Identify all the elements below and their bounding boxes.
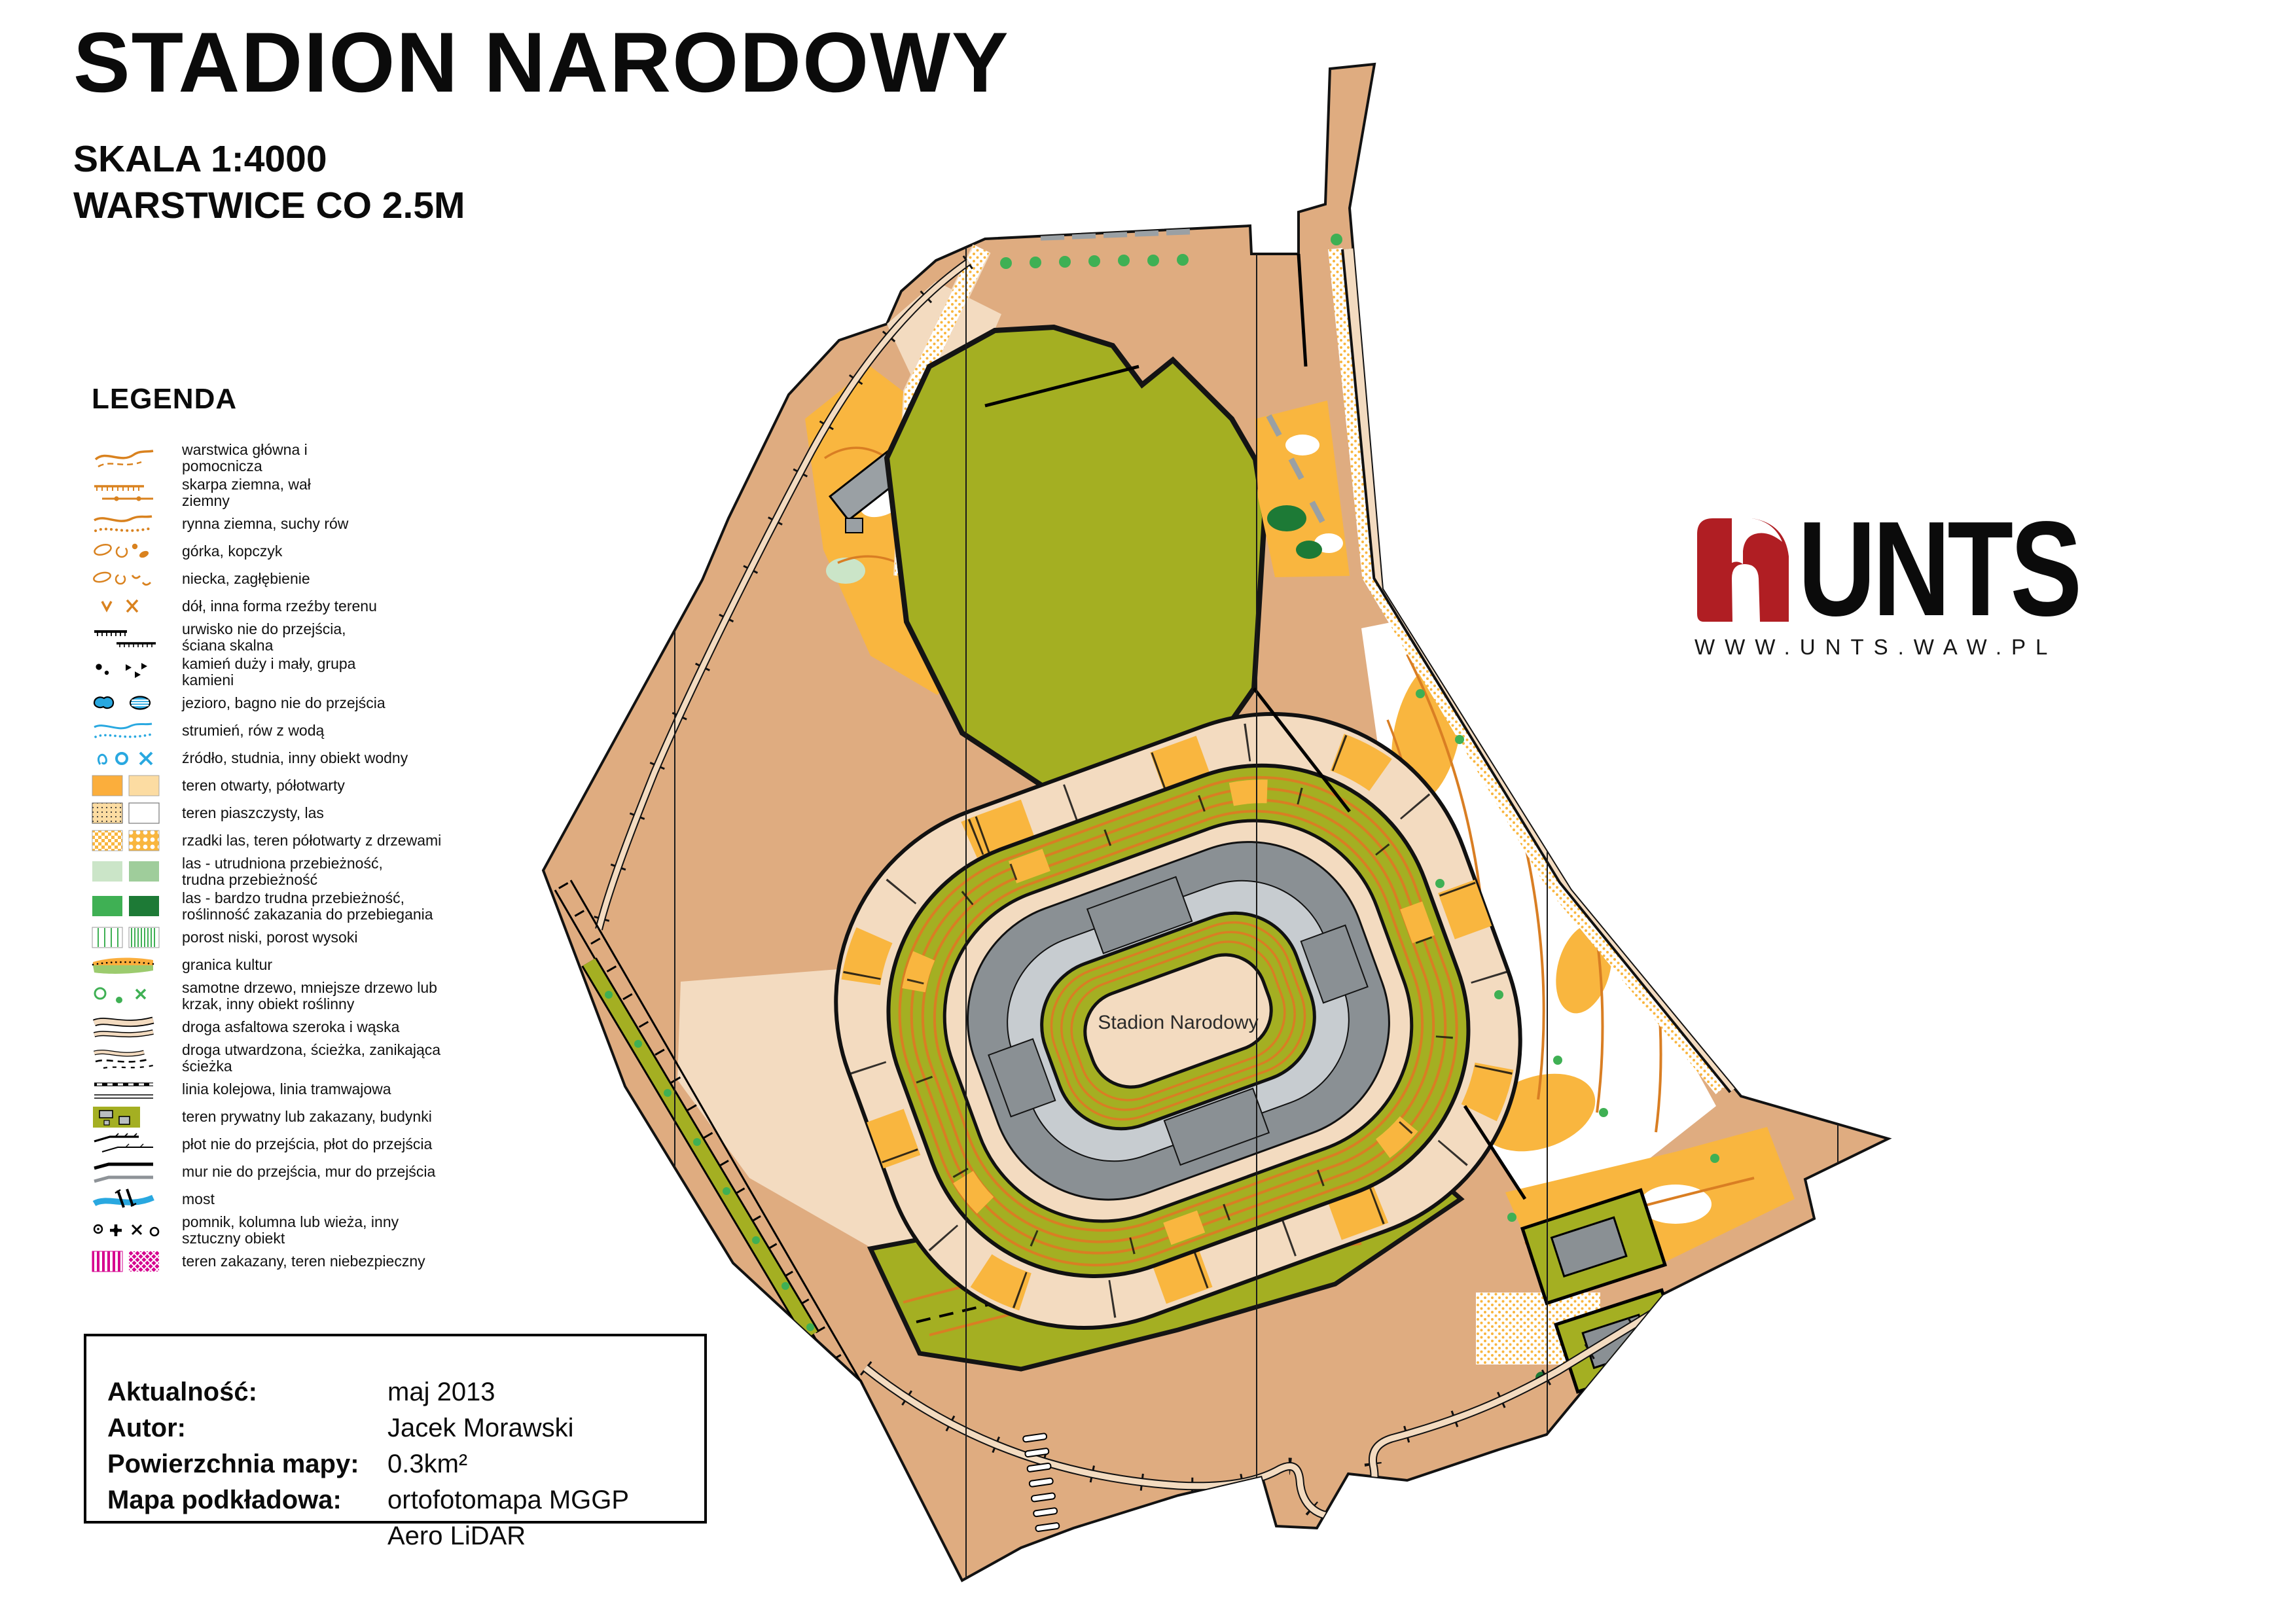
legend-item: niecka, zagłębienie <box>92 566 537 592</box>
unts-logo-text: UNTS <box>1798 516 2079 622</box>
map-scale-info: SKALA 1:4000 WARSTWICE CO 2.5M <box>73 136 1010 230</box>
legend-item-label: jezioro, bagno nie do przejścia <box>182 695 386 711</box>
stadium-label: Stadion Narodowy <box>1098 1012 1258 1033</box>
spring-icon <box>92 747 165 770</box>
legend-item-label: teren prywatny lub zakazany, budynki <box>182 1109 432 1125</box>
legend-item-label: teren zakazany, teren niebezpieczny <box>182 1253 425 1270</box>
info-box: Aktualność:maj 2013Autor:Jacek MorawskiP… <box>84 1334 707 1524</box>
legend-item-label: most <box>182 1191 215 1207</box>
info-row-value: ortofotomapa MGGP Aero LiDAR <box>387 1482 682 1554</box>
legend-item-label: rynna ziemna, suchy rów <box>182 516 348 532</box>
railway-icon <box>92 1078 165 1101</box>
header: STADION NARODOWY SKALA 1:4000 WARSTWICE … <box>73 20 1010 230</box>
legend-item: droga utwardzona, ścieżka, zanikająca śc… <box>92 1042 537 1075</box>
info-row-label: Powierzchnia mapy: <box>107 1446 387 1482</box>
private-area-icon <box>92 1105 165 1129</box>
cliff-icon <box>92 626 165 649</box>
legend-item: górka, kopczyk <box>92 539 537 564</box>
unts-logo-icon <box>1695 516 1791 624</box>
legend-item: teren otwarty, półotwarty <box>92 773 537 798</box>
legend-item: mur nie do przejścia, mur do przejścia <box>92 1159 537 1185</box>
legend-item: warstwica główna i pomocnicza <box>92 442 537 474</box>
legend-item-label: linia kolejowa, linia tramwajowa <box>182 1081 391 1097</box>
stones-icon <box>92 660 165 684</box>
info-row-value: 0.3km² <box>387 1446 682 1482</box>
info-row-label: Aktualność: <box>107 1374 387 1410</box>
info-row-label: Autor: <box>107 1410 387 1446</box>
pit-icon <box>92 595 165 618</box>
page-title: STADION NARODOWY <box>73 20 1010 105</box>
cultivation-boundary-icon <box>92 954 165 977</box>
legend-item-label: rzadki las, teren półotwarty z drzewami <box>182 832 441 849</box>
legend-item-label: droga asfaltowa szeroka i wąska <box>182 1019 399 1035</box>
legend-item: skarpa ziemna, wał ziemny <box>92 476 537 509</box>
depression-icon <box>92 567 165 591</box>
map-sheet: Stadion Narodowy <box>0 0 2296 1623</box>
legend-item: źródło, studnia, inny obiekt wodny <box>92 745 537 771</box>
legend-item: porost niski, porost wysoki <box>92 925 537 950</box>
contour-interval-text: WARSTWICE CO 2.5M <box>73 183 1010 229</box>
legend-item: kamień duży i mały, grupa kamieni <box>92 656 537 688</box>
legend-heading: LEGENDA <box>92 383 537 416</box>
info-row: Mapa podkładowa:ortofotomapa MGGP Aero L… <box>107 1482 704 1554</box>
legend-item: strumień, rów z wodą <box>92 718 537 743</box>
legend-item: pomnik, kolumna lub wieża, inny sztuczny… <box>92 1214 537 1247</box>
legend-item-label: urwisko nie do przejścia, ściana skalna <box>182 621 346 654</box>
legend-item-label: samotne drzewo, mniejsze drzewo lub krza… <box>182 980 437 1012</box>
legend-item-label: niecka, zagłębienie <box>182 571 310 587</box>
dirt-path-icon <box>92 1046 165 1070</box>
wall-icon <box>92 1160 165 1184</box>
info-row-value: Jacek Morawski <box>387 1410 682 1446</box>
legend-item-label: las - bardzo trudna przebieżność, roślin… <box>182 890 433 923</box>
legend-item: rzadki las, teren półotwarty z drzewami <box>92 828 537 853</box>
legend-item-label: strumień, rów z wodą <box>182 722 324 739</box>
legend: LEGENDA warstwica główna i pomocniczaska… <box>92 383 537 1276</box>
legend-item-label: skarpa ziemna, wał ziemny <box>182 476 311 509</box>
asphalt-road-icon <box>92 1016 165 1039</box>
legend-item-label: źródło, studnia, inny obiekt wodny <box>182 750 408 766</box>
legend-item-label: droga utwardzona, ścieżka, zanikająca śc… <box>182 1042 440 1075</box>
info-row: Autor:Jacek Morawski <box>107 1410 704 1446</box>
legend-item: linia kolejowa, linia tramwajowa <box>92 1077 537 1102</box>
contour-lines-icon <box>92 446 165 470</box>
stream-icon <box>92 719 165 743</box>
legend-item: urwisko nie do przejścia, ściana skalna <box>92 621 537 654</box>
legend-item-label: dół, inna forma rzeźby terenu <box>182 598 377 615</box>
legend-item: dół, inna forma rzeźby terenu <box>92 594 537 619</box>
info-row: Aktualność:maj 2013 <box>107 1374 704 1410</box>
forest-slow-icon <box>92 860 165 883</box>
legend-item: samotne drzewo, mniejsze drzewo lub krza… <box>92 980 537 1012</box>
legend-item-label: górka, kopczyk <box>182 543 282 560</box>
legend-item: teren zakazany, teren niebezpieczny <box>92 1249 537 1274</box>
info-rows: Aktualność:maj 2013Autor:Jacek MorawskiP… <box>107 1374 704 1554</box>
legend-item: most <box>92 1186 537 1212</box>
info-row: Powierzchnia mapy:0.3km² <box>107 1446 704 1482</box>
legend-item-label: kamień duży i mały, grupa kamieni <box>182 656 355 688</box>
lone-tree-icon <box>92 984 165 1008</box>
fence-icon <box>92 1133 165 1156</box>
legend-item-label: teren piaszczysty, las <box>182 805 324 821</box>
legend-item-label: pomnik, kolumna lub wieża, inny sztuczny… <box>182 1214 399 1247</box>
earth-bank-icon <box>92 481 165 505</box>
info-row-label: Mapa podkładowa: <box>107 1482 387 1554</box>
forest-fight-icon <box>92 895 165 918</box>
legend-item: płot nie do przejścia, płot do przejścia <box>92 1132 537 1157</box>
legend-item: droga asfaltowa szeroka i wąska <box>92 1014 537 1040</box>
legend-item-label: płot nie do przejścia, płot do przejścia <box>182 1136 432 1152</box>
legend-item-label: granica kultur <box>182 957 272 973</box>
legend-item: las - bardzo trudna przebieżność, roślin… <box>92 890 537 923</box>
unts-logo: UNTS WWW.UNTS.WAW.PL <box>1695 516 2113 660</box>
legend-items: warstwica główna i pomocniczaskarpa ziem… <box>92 442 537 1274</box>
legend-item: rynna ziemna, suchy rów <box>92 511 537 537</box>
legend-item: granica kultur <box>92 952 537 978</box>
lake-icon <box>92 692 165 715</box>
legend-item: teren piaszczysty, las <box>92 800 537 826</box>
knoll-icon <box>92 540 165 563</box>
legend-item-label: las - utrudniona przebieżność, trudna pr… <box>182 855 383 888</box>
open-land-icon <box>92 774 165 798</box>
monument-icon <box>92 1219 165 1242</box>
legend-item-label: mur nie do przejścia, mur do przejścia <box>182 1164 435 1180</box>
legend-item-label: warstwica główna i pomocnicza <box>182 442 308 474</box>
dry-ditch-icon <box>92 512 165 536</box>
legend-item: teren prywatny lub zakazany, budynki <box>92 1104 537 1130</box>
scale-text: SKALA 1:4000 <box>73 136 1010 183</box>
legend-item: jezioro, bagno nie do przejścia <box>92 690 537 716</box>
forbidden-area-icon <box>92 1250 165 1274</box>
sandy-ground-icon <box>92 802 165 825</box>
legend-item-label: porost niski, porost wysoki <box>182 929 357 946</box>
sparse-forest-icon <box>92 829 165 853</box>
legend-item: las - utrudniona przebieżność, trudna pr… <box>92 855 537 888</box>
legend-item-label: teren otwarty, półotwarty <box>182 777 345 794</box>
info-row-value: maj 2013 <box>387 1374 682 1410</box>
undergrowth-icon <box>92 926 165 950</box>
bridge-icon <box>92 1188 165 1211</box>
